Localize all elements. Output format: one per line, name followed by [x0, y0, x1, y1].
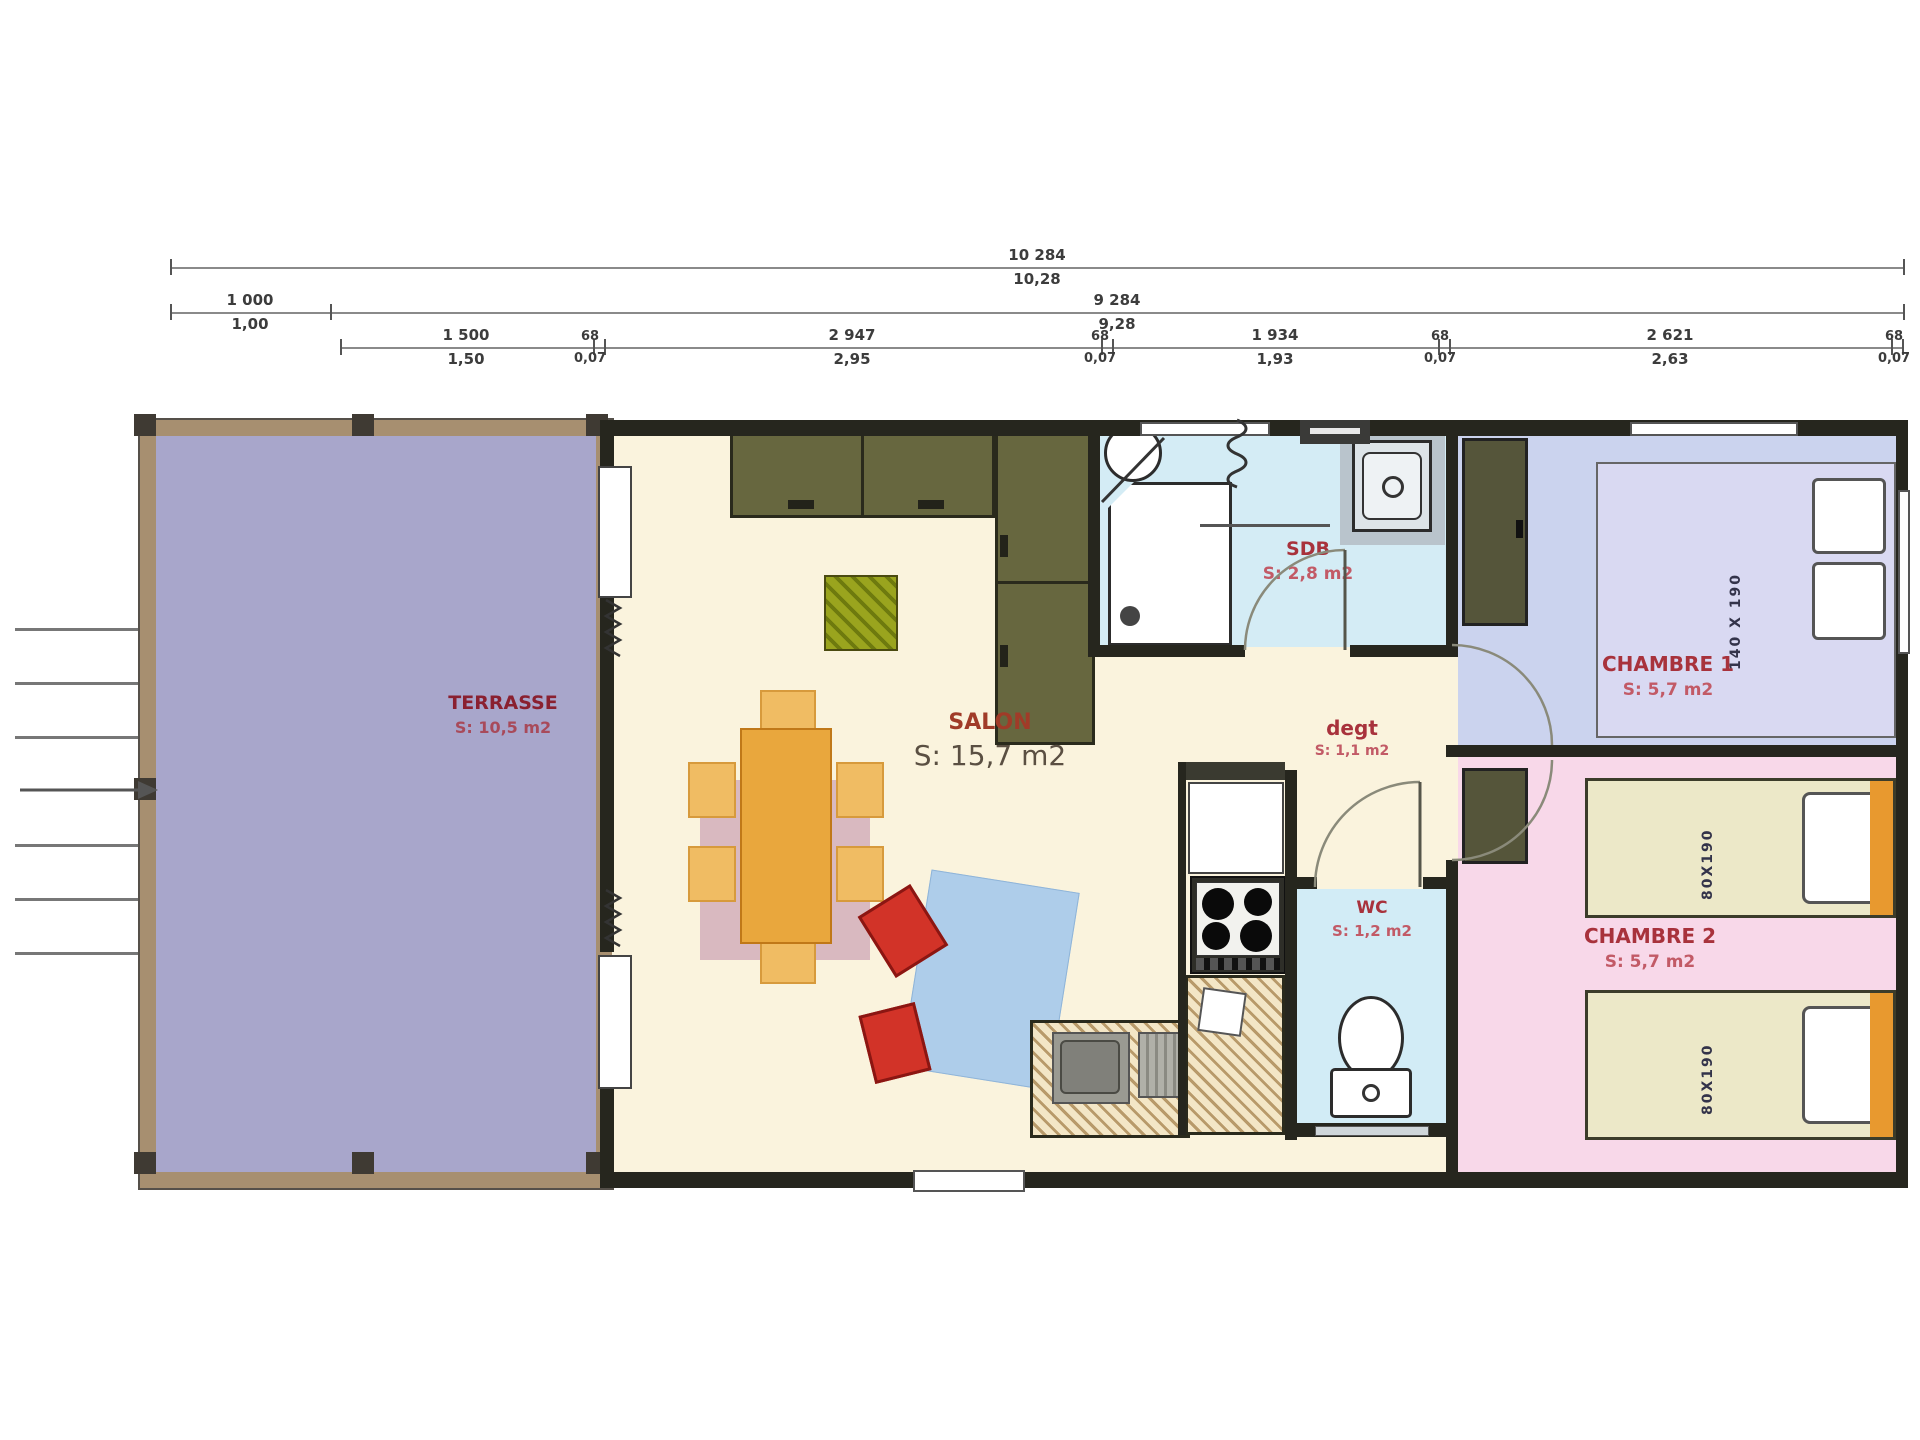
terrace-post: [134, 414, 156, 436]
wall-left-segment: [600, 420, 614, 470]
burner: [1202, 922, 1230, 950]
chambre1-top-window: [1630, 422, 1798, 436]
wall-chambers-vertical: [1446, 420, 1458, 645]
cabinet-handle: [788, 500, 814, 509]
cabinet-handle: [1000, 645, 1008, 667]
green-rug: [824, 575, 898, 651]
sink-drainer: [1138, 1032, 1182, 1098]
cabinet-top-band: [1185, 762, 1285, 780]
dining-chair: [836, 846, 884, 902]
grab-bar: [1200, 524, 1330, 527]
stove-knobs: [1196, 958, 1280, 970]
dim-tick: [1903, 304, 1905, 320]
dim-row3-5-mm: 68: [1431, 330, 1449, 343]
sdb-area: S: 2,8 m2: [1263, 566, 1354, 583]
dim-row3-6-m: 2,63: [1651, 352, 1688, 367]
dim-row3-2-mm: 2 947: [829, 328, 876, 343]
floor-plan: 10 284 10,28 1 000 1,00 9 284 9,28 1 500…: [0, 0, 1920, 1440]
wall-sdb-bottom: [1088, 645, 1245, 657]
dim-row3-0-mm: 1 500: [443, 328, 490, 343]
bed2-footboard: [1870, 993, 1893, 1137]
dim-row3-0-m: 1,50: [447, 352, 484, 367]
dining-table: [740, 728, 832, 944]
dining-chair: [688, 846, 736, 902]
chambre1-right-window: [1898, 490, 1910, 654]
wall-chambers-vertical: [1446, 860, 1458, 1172]
chambre2-label: CHAMBRE 2: [1584, 926, 1716, 946]
terrasse-area: S: 10,5 m2: [455, 720, 551, 736]
dim-row2-0-mm: 1 000: [227, 293, 274, 308]
washing-machine-door: [1382, 476, 1404, 498]
single-bed2-size-label: 80X190: [1700, 1015, 1716, 1115]
dining-chair: [688, 762, 736, 818]
cabinet-divider: [998, 581, 1092, 584]
cabinet-divider: [861, 425, 864, 515]
wall-wc-top: [1423, 877, 1446, 889]
salon-area: S: 15,7 m2: [914, 742, 1066, 770]
terrace-post: [352, 414, 374, 436]
cabinet-handle: [918, 500, 944, 509]
terrace-post: [352, 1152, 374, 1174]
stair-step: [15, 844, 148, 847]
dim-tick: [330, 304, 332, 320]
dim-row3-5-m: 0,07: [1424, 352, 1456, 365]
dim-row3-7-m: 0,07: [1878, 352, 1910, 365]
dim-row3-4-m: 1,93: [1256, 352, 1293, 367]
dim-row3-1-m: 0,07: [574, 352, 606, 365]
toilet-flush: [1362, 1084, 1380, 1102]
dim-row3-4-mm: 1 934: [1252, 328, 1299, 343]
cabinet-handle: [1000, 535, 1008, 557]
chambre2-cupboard: [1462, 768, 1528, 864]
chambre2-area: S: 5,7 m2: [1605, 954, 1696, 971]
shower-drain: [1120, 606, 1140, 626]
dim-row3-7-mm: 68: [1885, 330, 1903, 343]
dim-line-row3: [340, 347, 1903, 349]
dim-tick: [170, 304, 172, 320]
dim-line-row2: [170, 312, 1905, 314]
dining-chair: [760, 938, 816, 984]
terrasse-label: TERRASSE: [448, 694, 557, 713]
kitchen-side-panel: [1178, 762, 1186, 1135]
dim-total-mm: 10 284: [1008, 248, 1065, 263]
fridge: [1188, 782, 1284, 874]
burner: [1202, 888, 1234, 920]
wall-left-segment: [600, 1088, 614, 1188]
dim-row3-1-mm: 68: [581, 330, 599, 343]
terrace-door-leaf: [598, 955, 632, 1089]
dim-row3-2-m: 2,95: [833, 352, 870, 367]
wall-sdb-bottom: [1350, 645, 1458, 657]
sink-bowl: [1060, 1040, 1120, 1094]
wc-label: WC: [1356, 900, 1387, 917]
stair-step: [15, 682, 148, 685]
wall-left-segment: [600, 598, 614, 952]
dim-tick: [1903, 259, 1905, 275]
terrace-post: [134, 1152, 156, 1174]
dim-row2-0-m: 1,00: [231, 317, 268, 332]
wall-chambers-horizontal: [1446, 745, 1908, 757]
dim-line-total: [170, 267, 1905, 269]
degt-area: S: 1,1 m2: [1315, 744, 1390, 758]
bed1-footboard: [1870, 781, 1893, 915]
dim-total-m: 10,28: [1013, 272, 1060, 287]
sdb-vent-slot: [1310, 428, 1360, 434]
wc-bottom-window: [1315, 1126, 1429, 1136]
wall-sdb-left: [1088, 420, 1100, 657]
sdb-window: [1140, 422, 1270, 436]
wall-wc-top: [1297, 877, 1317, 889]
wardrobe-handle: [1516, 520, 1523, 538]
stair-step: [15, 952, 148, 955]
salon-bottom-window: [913, 1170, 1025, 1192]
dining-chair: [836, 762, 884, 818]
pillow: [1812, 562, 1886, 640]
pillow: [1812, 478, 1886, 554]
single-bed1-size-label: 80X190: [1700, 800, 1716, 900]
sdb-label: SDB: [1286, 540, 1330, 559]
chambre1-area: S: 5,7 m2: [1623, 682, 1714, 699]
stair-step: [15, 898, 148, 901]
wc-area: S: 1,2 m2: [1332, 924, 1412, 939]
dim-row2-1-mm: 9 284: [1094, 293, 1141, 308]
dim-row3-3-m: 0,07: [1084, 352, 1116, 365]
dim-tick: [170, 259, 172, 275]
dim-row3-3-mm: 68: [1091, 330, 1109, 343]
dim-tick: [340, 339, 342, 355]
dim-row3-6-mm: 2 621: [1647, 328, 1694, 343]
terrace: [140, 420, 612, 1188]
burner: [1244, 888, 1272, 916]
terrace-post: [134, 778, 156, 800]
counter-board: [1197, 987, 1247, 1037]
wall-bottom: [612, 1172, 1908, 1188]
stair-step: [15, 628, 148, 631]
dimension-annotations: 10 284 10,28 1 000 1,00 9 284 9,28 1 500…: [0, 0, 1920, 400]
salon-label: SALON: [948, 712, 1031, 734]
wall-wc-left: [1285, 770, 1297, 1140]
terrace-door-leaf: [598, 466, 632, 598]
chambre1-label: CHAMBRE 1: [1602, 654, 1734, 674]
burner: [1240, 920, 1272, 952]
stair-step: [15, 736, 148, 739]
degt-label: degt: [1326, 718, 1378, 738]
double-bed-size-label: 140 X 190: [1728, 530, 1744, 670]
